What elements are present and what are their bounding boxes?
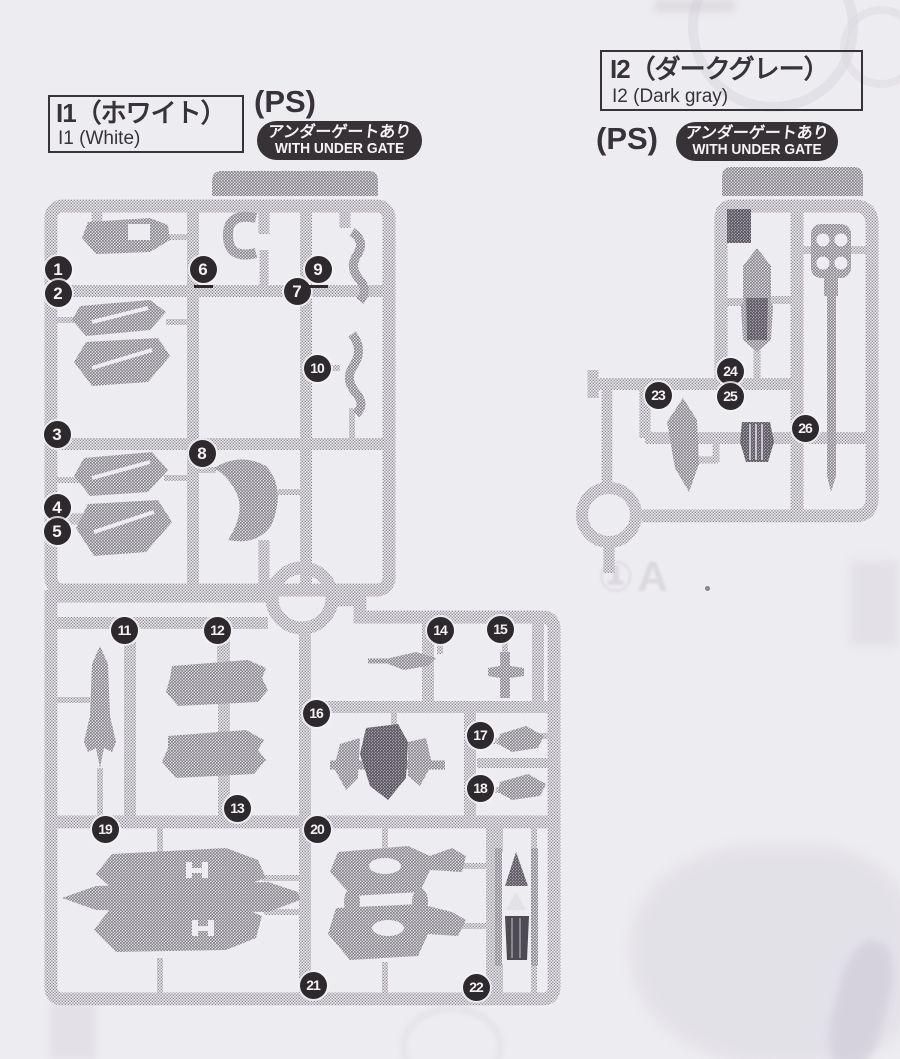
- part-callout-7: 7: [284, 278, 311, 305]
- part-callout-13: 13: [224, 795, 251, 822]
- runner-i1-material: (PS): [254, 84, 316, 120]
- part-callout-22: 22: [463, 974, 490, 1001]
- part-callout-18: 18: [467, 775, 494, 802]
- part-callout-11: 11: [111, 617, 138, 644]
- part-callout-24: 24: [717, 358, 744, 385]
- part-callout-26: 26: [792, 415, 819, 442]
- instruction-sheet-page: ①A: [0, 0, 900, 1059]
- part-callout-14: 14: [427, 617, 454, 644]
- undergate-en-text: WITH UNDER GATE: [682, 142, 831, 158]
- part-callout-21: 21: [300, 972, 327, 999]
- runner-i2-name-jp: I2（ダークグレー）: [610, 54, 861, 85]
- part-callout-10: 10: [304, 355, 331, 382]
- part-callout-20: 20: [304, 816, 331, 843]
- runner-i2-material: (PS): [596, 121, 658, 157]
- part-callout-16: 16: [303, 700, 330, 727]
- part-callout-17: 17: [467, 722, 494, 749]
- part-callout-1: 1: [45, 256, 72, 283]
- part-callout-5: 5: [44, 518, 71, 545]
- part-callout-3: 3: [44, 421, 71, 448]
- runner-i2-label-box: I2（ダークグレー） I2 (Dark gray): [600, 50, 863, 111]
- part-callout-15: 15: [487, 616, 514, 643]
- part-callout-25: 25: [717, 383, 744, 410]
- part-callout-8: 8: [189, 440, 216, 467]
- part-callout-23: 23: [645, 382, 672, 409]
- undergate-jp-text: アンダーゲートあり: [675, 125, 839, 142]
- undergate-en-text: WITH UNDER GATE: [264, 141, 416, 157]
- runner-i2-undergate-badge: アンダーゲートあり WITH UNDER GATE: [676, 122, 838, 161]
- part-callout-9: 9: [305, 256, 332, 283]
- runner-i1-name-en: I1 (White): [58, 128, 242, 150]
- part-callout-6: 6: [190, 256, 217, 283]
- part-callout-12: 12: [204, 617, 231, 644]
- part-callout-19: 19: [92, 816, 119, 843]
- runner-i2-name-en: I2 (Dark gray): [612, 85, 861, 108]
- runner-i1-name-jp: I1（ホワイト）: [56, 98, 242, 128]
- part-callout-2: 2: [45, 280, 72, 307]
- part-callout-4: 4: [44, 494, 71, 521]
- runner-i1-undergate-badge: アンダーゲートあり WITH UNDER GATE: [257, 121, 422, 160]
- undergate-jp-text: アンダーゲートあり: [256, 124, 423, 141]
- runner-i1-label-box: I1（ホワイト） I1 (White): [48, 95, 244, 153]
